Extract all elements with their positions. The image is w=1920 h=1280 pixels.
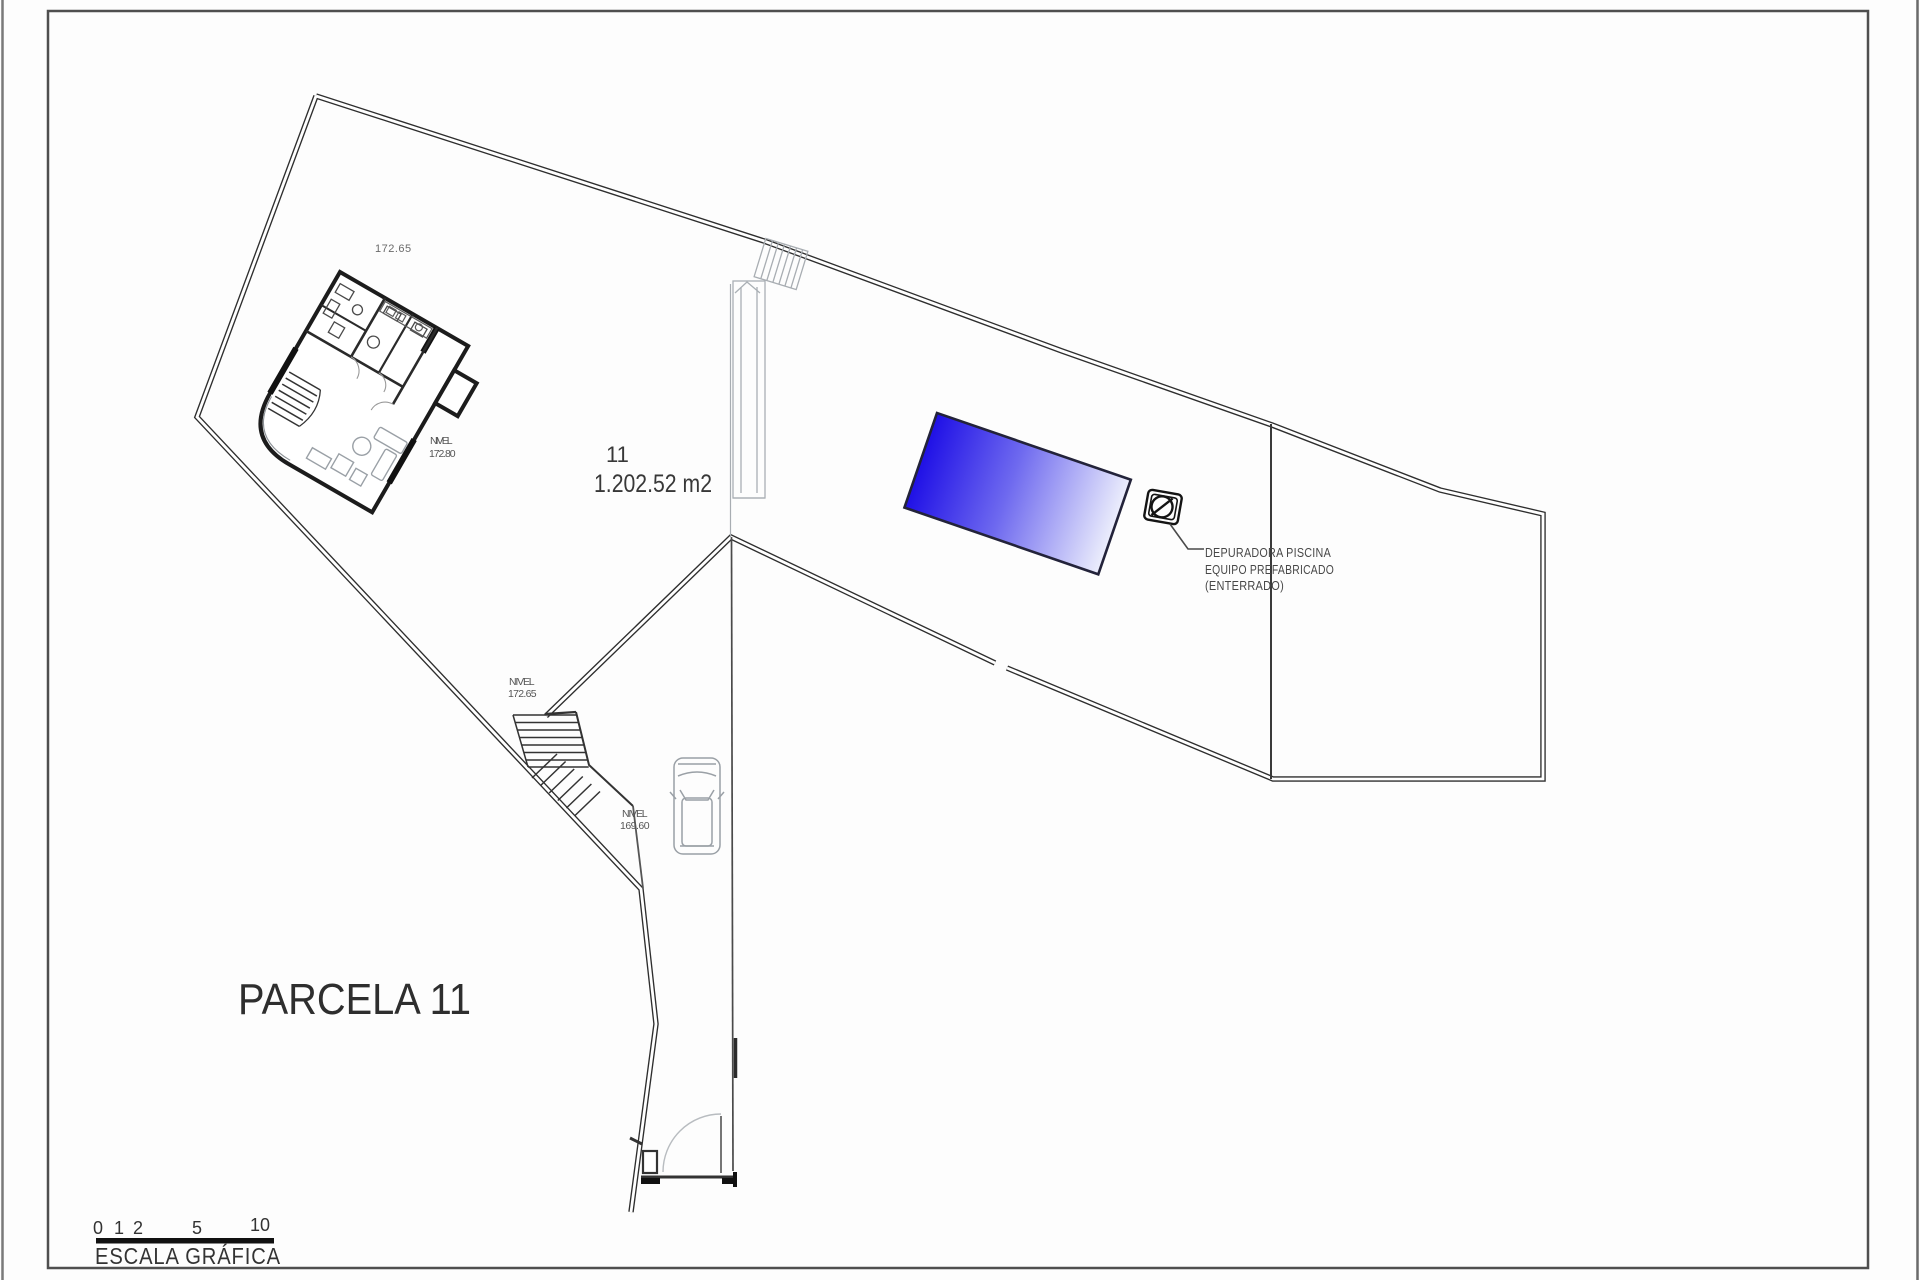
- pool-pump-note: DEPURADORA PISCINA EQUIPO PREFABRICADO (…: [1205, 545, 1334, 593]
- pool: [904, 413, 1130, 574]
- pool-note-line3: (ENTERRADO): [1205, 578, 1284, 593]
- drive-level-label: NIVEL: [622, 808, 648, 820]
- boundary-core: [197, 96, 1543, 1212]
- terrain-level-label: 172.65: [375, 243, 412, 255]
- parcel-boundary: [197, 96, 1543, 1212]
- house-outer-wall: [244, 272, 468, 512]
- house-level-value: 172.80: [429, 448, 456, 460]
- graphic-scale: 0 1 2 5 10 ESCALA GRÁFICA: [93, 1215, 281, 1269]
- pool-pump-symbol: [1144, 489, 1204, 549]
- car: [670, 758, 724, 854]
- driveway-edge: [732, 537, 734, 1171]
- boundary-outer: [197, 96, 1543, 1212]
- scale-tick-0: 0: [93, 1218, 103, 1238]
- house-plan: [244, 272, 491, 525]
- retaining-wall: [733, 281, 765, 498]
- gate-pillar: [643, 1151, 657, 1173]
- sheet-frame: [48, 11, 1868, 1268]
- scale-tick-10: 10: [250, 1215, 270, 1235]
- mid-level-value: 172.65: [508, 688, 537, 700]
- pool-note-line1: DEPURADORA PISCINA: [1205, 545, 1331, 560]
- parcel-area-label: 1.202.52 m2: [594, 470, 712, 498]
- scale-tick-1: 1: [114, 1218, 124, 1238]
- site-plan-svg: 172.65 11 1.202.52 m2 NIVEL 172.80 NIVEL…: [0, 0, 1920, 1280]
- drive-level-value: 169.60: [620, 820, 650, 832]
- scale-tick-2: 2: [133, 1218, 143, 1238]
- scale-tick-5: 5: [192, 1218, 202, 1238]
- house-level-label: NIVEL: [430, 435, 453, 447]
- pool-note-line2: EQUIPO PREFABRICADO: [1205, 562, 1334, 577]
- site-stairs: [513, 712, 643, 888]
- drawing-sheet: 172.65 11 1.202.52 m2 NIVEL 172.80 NIVEL…: [0, 0, 1920, 1280]
- leader-line: [1170, 524, 1204, 549]
- scale-label: ESCALA GRÁFICA: [95, 1243, 281, 1269]
- gate-swing-arc: [663, 1114, 721, 1172]
- parcel-title: PARCELA 11: [238, 975, 471, 1024]
- parcel-number-label: 11: [606, 442, 629, 467]
- mid-level-label: NIVEL: [509, 676, 535, 688]
- entrance-gate: [630, 1114, 736, 1187]
